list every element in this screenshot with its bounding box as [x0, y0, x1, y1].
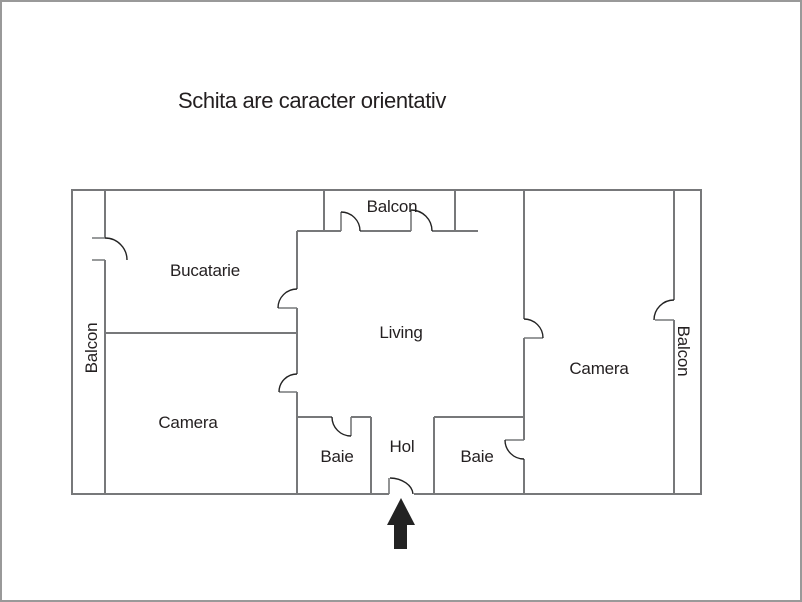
- label-hall: Hol: [390, 437, 415, 456]
- label-balcony-top: Balcon: [367, 197, 418, 216]
- label-bedroom-left: Camera: [158, 413, 218, 432]
- door-arc-balcony-top-1: [341, 212, 360, 231]
- sketch-disclaimer-title: Schita are caracter orientativ: [178, 88, 446, 113]
- door-arc-kitchen: [278, 289, 297, 308]
- door-arc-bedroom-left: [279, 374, 297, 392]
- label-living: Living: [379, 323, 422, 342]
- label-kitchen: Bucatarie: [170, 261, 240, 280]
- label-balcony-right: Balcon: [674, 326, 693, 377]
- door-leaves: [92, 210, 674, 494]
- door-arc-bath-left: [332, 417, 351, 436]
- door-arc-balcony-right: [654, 300, 674, 320]
- label-bath-right: Baie: [460, 447, 493, 466]
- floor-plan-sketch: Schita are caracter orientativ: [0, 0, 802, 602]
- door-arc-bedroom-right: [524, 319, 543, 338]
- label-balcony-left: Balcon: [82, 323, 101, 374]
- door-arc-bath-right: [505, 440, 524, 459]
- label-bedroom-right: Camera: [569, 359, 629, 378]
- door-arc-balcony-left: [105, 238, 127, 260]
- door-arc-entrance: [390, 478, 413, 494]
- door-leaf-balcony-left: [92, 238, 105, 260]
- floor-plan-canvas: Schita are caracter orientativ: [2, 2, 802, 602]
- entrance-arrow-icon: [387, 498, 415, 549]
- label-bath-left: Baie: [320, 447, 353, 466]
- outer-walls: [72, 190, 701, 494]
